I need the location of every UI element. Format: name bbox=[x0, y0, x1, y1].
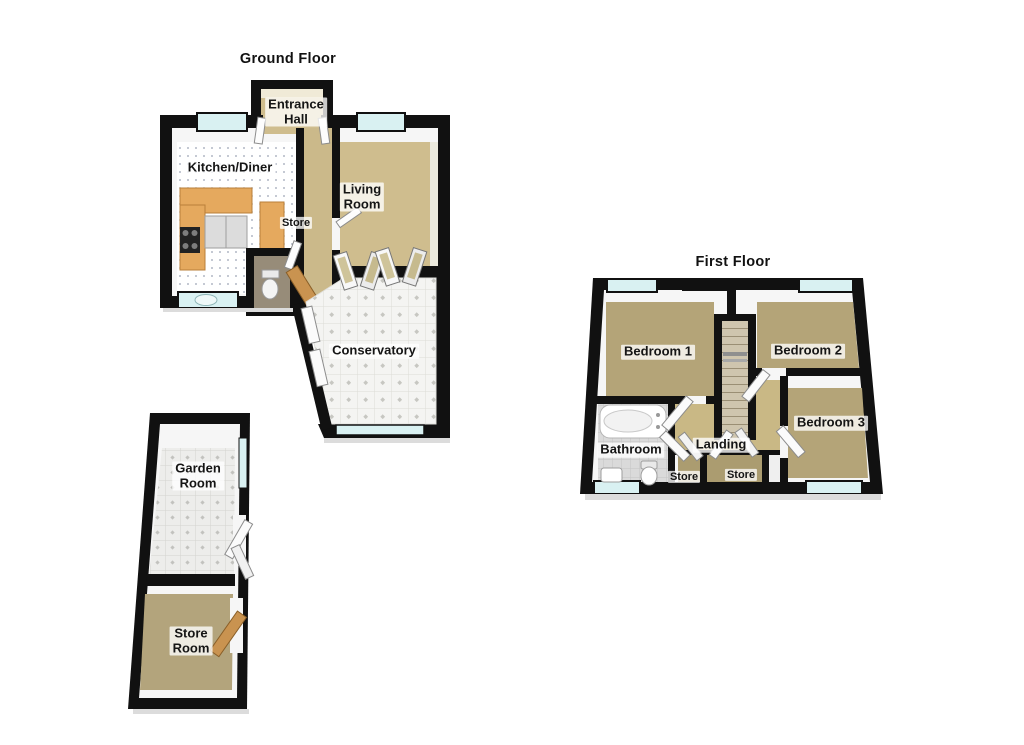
toilet-icon bbox=[262, 279, 278, 299]
bath-tap bbox=[656, 413, 660, 417]
bathroom-top-wall bbox=[592, 396, 675, 404]
room-label-living-room: Living Room bbox=[340, 182, 384, 211]
room-label-entrance-hall: Entrance Hall bbox=[265, 97, 327, 126]
stairs bbox=[722, 321, 748, 440]
stair-rail bbox=[723, 352, 747, 356]
room-label-bathroom: Bathroom bbox=[597, 443, 664, 458]
bedroom2-window bbox=[799, 279, 853, 292]
stair-wall-top bbox=[714, 314, 756, 321]
stove bbox=[180, 227, 200, 253]
shadow bbox=[585, 494, 881, 500]
room-label-bedroom-2: Bedroom 2 bbox=[771, 344, 845, 359]
stove-burner bbox=[183, 243, 189, 249]
stove-burner bbox=[183, 230, 189, 236]
hall-living-wall-upper bbox=[332, 128, 340, 218]
stair-rail bbox=[723, 359, 747, 362]
bedroom1-landing-wall-b bbox=[706, 396, 716, 404]
bath-tap bbox=[656, 425, 660, 429]
room-label-bedroom-3: Bedroom 3 bbox=[794, 416, 868, 431]
floorplan-drawing bbox=[0, 0, 1024, 745]
room-label-conservatory: Conservatory bbox=[329, 344, 419, 359]
kitchen-window bbox=[197, 113, 247, 131]
outbuilding-plan bbox=[128, 413, 254, 714]
stair-wall-left bbox=[714, 314, 722, 440]
room-label-garden-room: Garden Room bbox=[172, 461, 224, 490]
first-floor-plan bbox=[580, 278, 883, 500]
stove-burner bbox=[192, 243, 198, 249]
room-label-kitchen-diner: Kitchen/Diner bbox=[185, 161, 276, 176]
room-label-landing: Landing bbox=[693, 438, 750, 453]
kitchen-sink bbox=[195, 295, 217, 306]
bath-basin bbox=[604, 410, 652, 432]
conservatory-window bbox=[336, 425, 424, 435]
bedroom3-window bbox=[806, 481, 862, 494]
stair-wall-right bbox=[748, 314, 756, 440]
bedroom3-floor bbox=[788, 388, 868, 478]
garden-store-divider-wall bbox=[146, 574, 235, 586]
room-label-store-right: Store bbox=[725, 469, 757, 481]
toilet-icon bbox=[641, 467, 657, 485]
ground-floor-plan bbox=[160, 80, 450, 443]
corridor-sliver bbox=[769, 455, 780, 482]
room-label-store-gf: Store bbox=[280, 217, 312, 229]
room-label-bedroom-1: Bedroom 1 bbox=[621, 345, 695, 360]
floorplan-canvas: Ground Floor First Floor Entrance Hall K… bbox=[0, 0, 1024, 745]
stove-burner bbox=[192, 230, 198, 236]
hall-floor bbox=[304, 128, 332, 296]
ground-floor-title: Ground Floor bbox=[240, 51, 336, 67]
garden-room-window bbox=[239, 438, 247, 488]
bedroom3-left-wall-stub bbox=[780, 458, 788, 482]
conservatory-right-wall bbox=[436, 266, 450, 438]
living-room-window bbox=[357, 113, 405, 131]
bathroom-window bbox=[594, 481, 640, 494]
shadow bbox=[324, 438, 450, 443]
sink bbox=[601, 468, 622, 482]
shadow bbox=[133, 709, 249, 714]
store-partition-right bbox=[762, 450, 769, 482]
bedroom3-left-wall bbox=[780, 376, 788, 426]
toilet-cistern bbox=[262, 270, 279, 278]
first-floor-title: First Floor bbox=[696, 254, 771, 270]
room-label-store-room: Store Room bbox=[170, 626, 213, 655]
bedroom2-bottom-wall bbox=[786, 368, 868, 376]
room-label-store-left: Store bbox=[668, 471, 700, 483]
bedroom1-window bbox=[607, 279, 657, 292]
living-room-wallface-right bbox=[430, 142, 438, 266]
shadow bbox=[163, 308, 293, 312]
